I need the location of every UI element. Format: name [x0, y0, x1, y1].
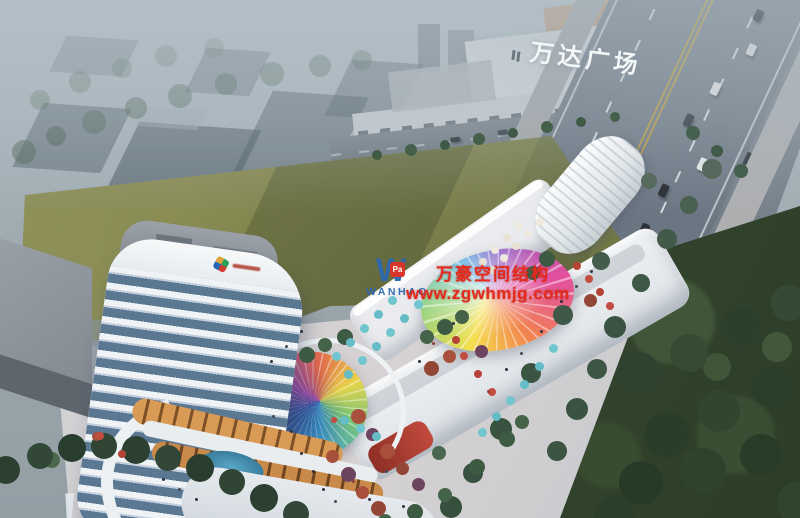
tower-logo-emblem — [212, 256, 230, 274]
watermark-logo-badge: Pa — [390, 262, 405, 277]
watermark-badge-text: Pa — [393, 265, 403, 274]
aerial-render-scene: 万达广场 — [0, 0, 800, 518]
people-dots — [0, 0, 3, 3]
watermark-company: 万豪空间结构 — [436, 260, 550, 285]
haze-overlay — [0, 0, 800, 215]
watermark: W Pa WANHAO 万豪空间结构 www.zgwhmjg.com — [364, 246, 594, 316]
watermark-website: www.zgwhmjg.com — [406, 284, 570, 304]
tower-logo-text-mark — [232, 264, 260, 272]
